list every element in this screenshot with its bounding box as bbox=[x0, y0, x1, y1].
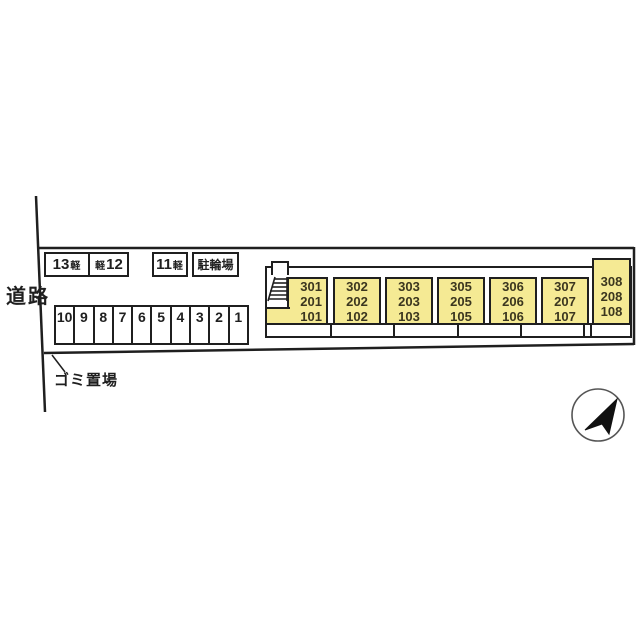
unit-cell-308: 308 208 108 bbox=[592, 258, 631, 325]
balcony-divider bbox=[590, 325, 592, 337]
kei-stall-12: 軽 12 bbox=[90, 254, 127, 275]
kei-stall-13-number: 13 bbox=[53, 256, 70, 273]
unit-number: 107 bbox=[554, 309, 576, 324]
unit-number: 203 bbox=[398, 294, 420, 309]
unit-number: 103 bbox=[398, 309, 420, 324]
unit-number: 303 bbox=[398, 279, 420, 294]
unit-cell-305: 305 205 105 bbox=[437, 277, 485, 325]
unit-cell-303: 303 203 103 bbox=[385, 277, 433, 325]
balcony-top-line bbox=[265, 323, 632, 325]
bicycle-parking-box: 駐輪場 bbox=[192, 252, 239, 277]
unit-number: 308 bbox=[601, 274, 623, 289]
balcony-divider bbox=[520, 325, 522, 337]
unit-number: 305 bbox=[450, 279, 472, 294]
stairs-icon bbox=[265, 276, 291, 304]
site-plan: 道路 13 軽 軽 12 11 軽 駐輪場 10 9 8 7 6 5 4 3 2… bbox=[0, 0, 640, 640]
unit-cell-306: 306 206 106 bbox=[489, 277, 537, 325]
kei-stall-13: 13 軽 bbox=[46, 254, 90, 275]
unit-number: 306 bbox=[502, 279, 524, 294]
unit-number: 202 bbox=[346, 294, 368, 309]
balcony-divider bbox=[330, 325, 332, 337]
parking-stall-6: 6 bbox=[131, 307, 150, 343]
parking-stall-9: 9 bbox=[73, 307, 92, 343]
building-entrance-tab bbox=[271, 261, 289, 275]
unit-number: 201 bbox=[300, 294, 322, 309]
boundary-bottom-line bbox=[44, 344, 634, 353]
balcony-divider bbox=[457, 325, 459, 337]
unit-cell-307: 307 207 107 bbox=[541, 277, 589, 325]
parking-stall-5: 5 bbox=[150, 307, 169, 343]
unit-number: 301 bbox=[300, 279, 322, 294]
unit-number: 307 bbox=[554, 279, 576, 294]
unit-cell-301: 301 201 101 bbox=[287, 277, 328, 325]
balcony-divider bbox=[393, 325, 395, 337]
kei-stall-12-prefix: 軽 bbox=[95, 257, 105, 272]
unit-number: 206 bbox=[502, 294, 524, 309]
compass-north-arrow-icon bbox=[568, 385, 630, 447]
kei-stall-12-number: 12 bbox=[106, 256, 123, 273]
parking-stall-2: 2 bbox=[208, 307, 227, 343]
parking-stall-8: 8 bbox=[93, 307, 112, 343]
unit-cell-302: 302 202 102 bbox=[333, 277, 381, 325]
parking-stall-4: 4 bbox=[170, 307, 189, 343]
unit-number: 108 bbox=[601, 304, 623, 319]
unit-number: 207 bbox=[554, 294, 576, 309]
parking-stall-1: 1 bbox=[228, 307, 247, 343]
kei-stall-11: 11 軽 bbox=[152, 252, 188, 277]
unit-number: 205 bbox=[450, 294, 472, 309]
unit-number: 302 bbox=[346, 279, 368, 294]
kei-stall-11-number: 11 bbox=[156, 256, 172, 273]
balcony-divider bbox=[583, 325, 585, 337]
unit-number: 101 bbox=[300, 309, 322, 324]
parking-row: 10 9 8 7 6 5 4 3 2 1 bbox=[54, 305, 249, 345]
parking-stall-10: 10 bbox=[56, 307, 73, 343]
unit-number: 102 bbox=[346, 309, 368, 324]
unit-number: 106 bbox=[502, 309, 524, 324]
kei-stall-11-suffix: 軽 bbox=[173, 257, 183, 272]
road-label: 道路 bbox=[6, 280, 50, 309]
kei-stall-13-suffix: 軽 bbox=[70, 257, 80, 272]
parking-stall-3: 3 bbox=[189, 307, 208, 343]
unit-number: 105 bbox=[450, 309, 472, 324]
garbage-area-label: ゴミ置場 bbox=[54, 369, 118, 390]
kei-parking-box-13-12: 13 軽 軽 12 bbox=[44, 252, 129, 277]
unit-number: 208 bbox=[601, 289, 623, 304]
parking-stall-7: 7 bbox=[112, 307, 131, 343]
